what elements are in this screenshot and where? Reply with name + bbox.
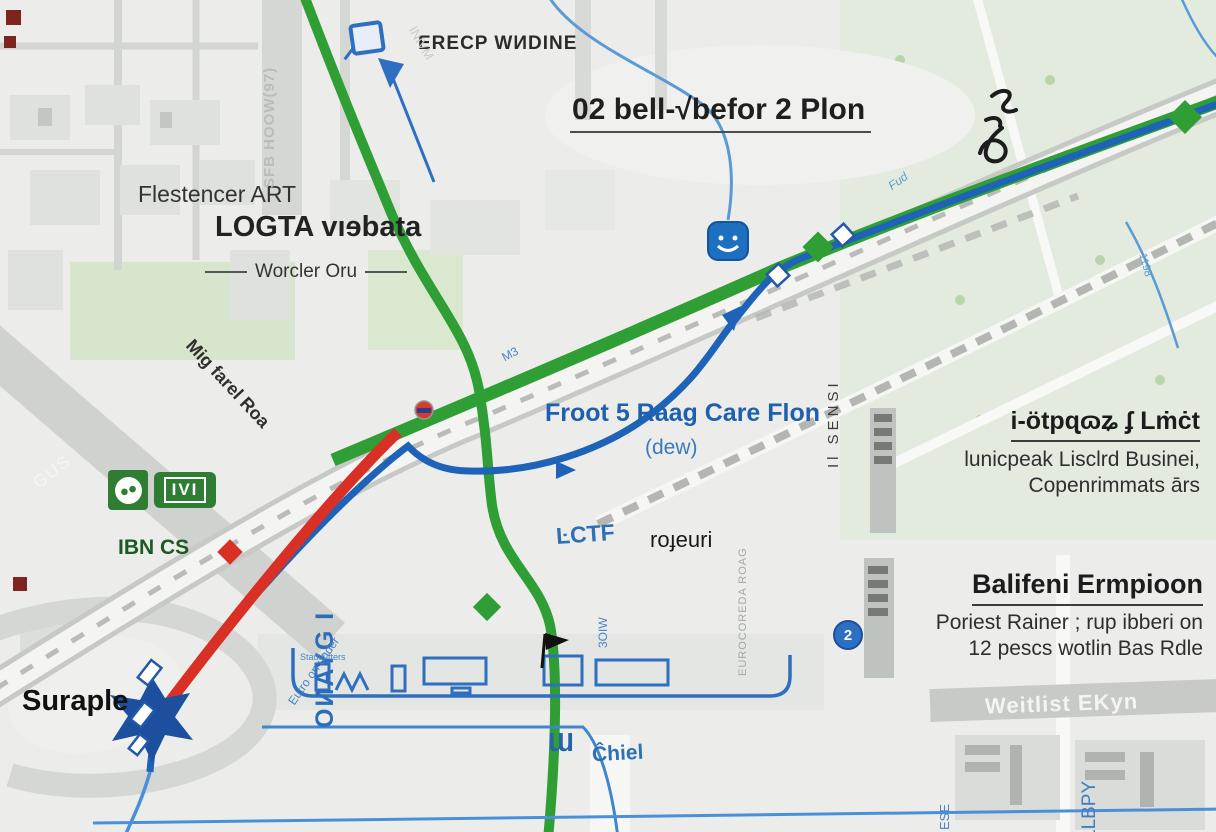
- dash-rule: [365, 271, 407, 273]
- label-iotp-title: i-ötpɋɷʑ ʄ Lṁċt: [1011, 408, 1200, 442]
- ibn-cs-logo[interactable]: IVI: [108, 470, 216, 510]
- label-ctf: ĿCTF: [555, 520, 615, 549]
- balifeni-block: Balifeni Ermpioon Poriest Rainer ; rup i…: [878, 570, 1203, 660]
- junction-roundel-icon[interactable]: [415, 401, 433, 419]
- label-froot: Froot 5 Raag Care Flon: [545, 400, 820, 428]
- label-rojeuri: roɟeuri: [650, 528, 712, 552]
- label-ibn-cs: IBN CS: [118, 536, 189, 559]
- label-erecp: ERECP WИDINE: [418, 34, 577, 55]
- transit-station-icon[interactable]: [708, 222, 748, 260]
- logo-tree-icon: [108, 470, 148, 510]
- route-badge-2[interactable]: 2: [833, 620, 863, 650]
- label-worcler: Worcler Oru: [205, 262, 407, 283]
- label-worcler-text: Worcler Oru: [255, 262, 357, 283]
- dash-rule: [205, 271, 247, 273]
- iotp-block: i-ötpɋɷʑ ʄ Lṁċt lunicpeak Lisclrd Busine…: [890, 408, 1200, 497]
- label-stadt: Stadtlüfters: [300, 653, 346, 663]
- label-dew: (dew): [645, 436, 698, 459]
- road-label-llbpy: LLBPY: [1080, 781, 1101, 832]
- road-label-euro: EUROCOREDA ROAG: [737, 547, 749, 676]
- label-iotp-sub1: lunicpeak Lisclrd Businei,: [890, 448, 1200, 471]
- road-label-il-sensi: Il SENSI: [826, 379, 843, 468]
- label-balifeni-title: Balifeni Ermpioon: [972, 570, 1203, 606]
- road-label-ese: ESE: [938, 804, 952, 830]
- label-chiel: Ĉhiel: [591, 741, 643, 767]
- map-canvas[interactable]: ERECP WИDINE INIVM 02 bell-√befor 2 Plon…: [0, 0, 1216, 832]
- label-balifeni-sub1: Poriest Rainer ; rup ibberi on: [878, 611, 1203, 634]
- logo-ivi-text: IVI: [164, 477, 207, 503]
- label-iotp-sub2: Copenrimmats ārs: [890, 474, 1200, 497]
- label-suraple: Suraple: [22, 686, 128, 718]
- label-balifeni-sub2: 12 pescs wotlin Bas Rdle: [878, 637, 1203, 660]
- label-logta: LOGTA vıɘbata: [215, 212, 421, 244]
- map-title: 02 bell-√befor 2 Plon: [570, 93, 871, 133]
- harbor-glyph-icon[interactable]: Ɯ: [548, 728, 574, 757]
- logo-ivi-plate: IVI: [154, 472, 216, 508]
- road-label-3oiw: 3OIW: [597, 617, 610, 648]
- road-label-sfb: SFB HOOW(97): [262, 67, 279, 188]
